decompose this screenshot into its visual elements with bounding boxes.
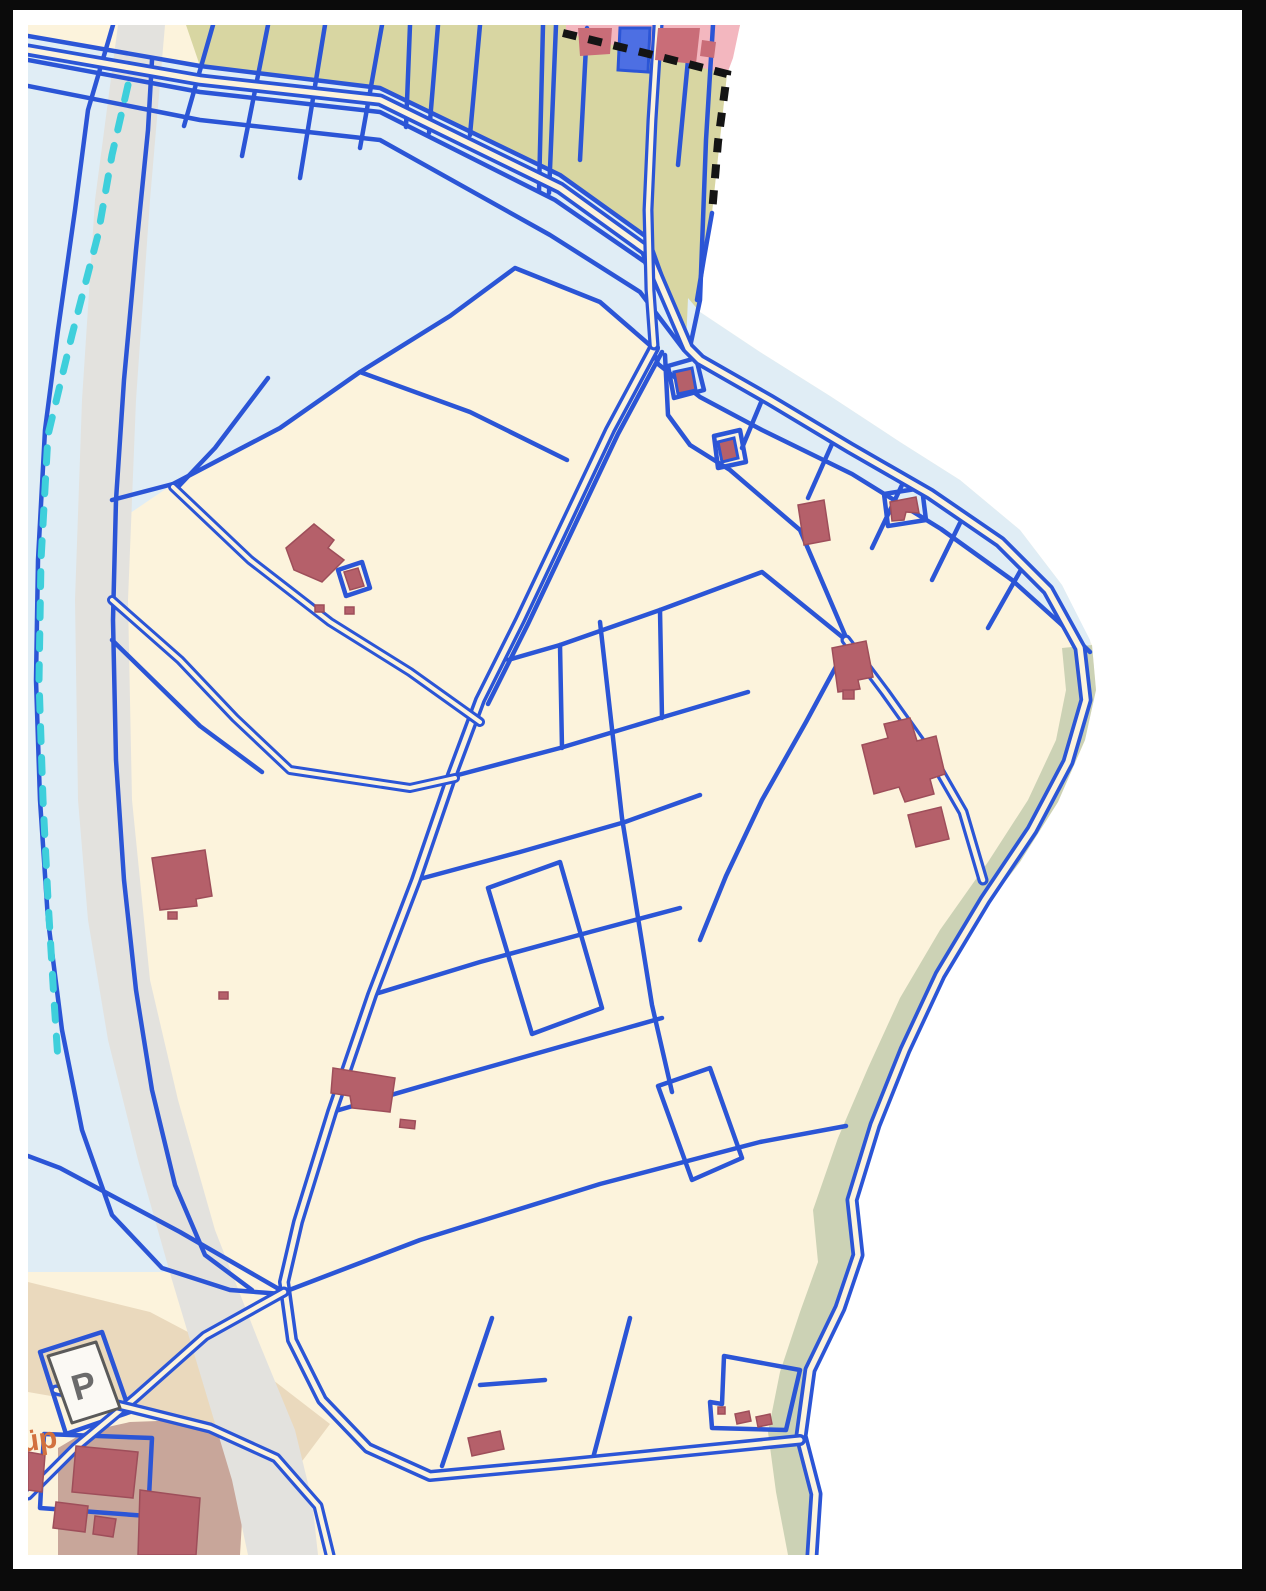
cadastral-map-viewport[interactable]: P üp — [0, 0, 1266, 1591]
cadastral-map-canvas[interactable]: P üp — [0, 0, 1266, 1591]
